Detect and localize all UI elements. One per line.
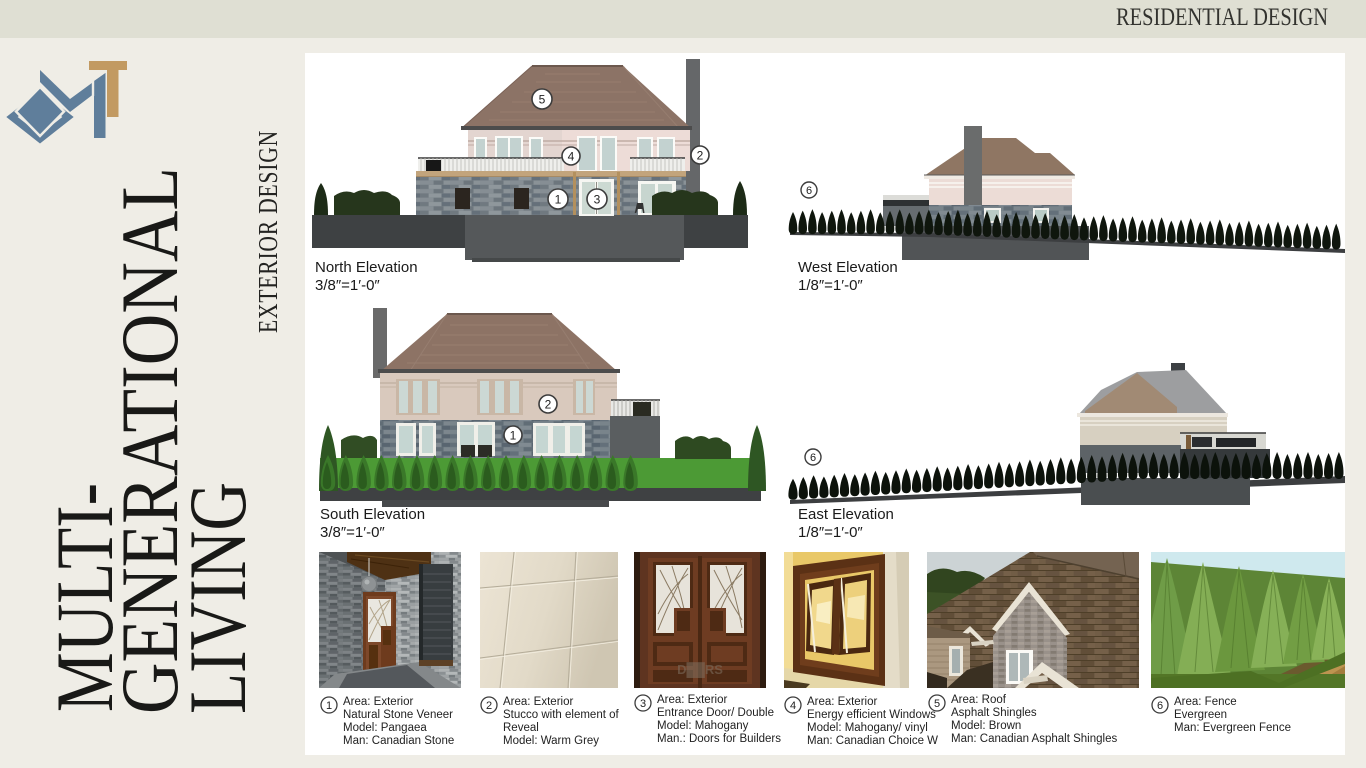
svg-text:LIVING: LIVING — [172, 482, 263, 714]
svg-text:3: 3 — [594, 193, 601, 207]
svg-text:5: 5 — [934, 698, 940, 710]
svg-text:1: 1 — [326, 700, 332, 712]
svg-text:3: 3 — [640, 698, 646, 710]
svg-text:6: 6 — [806, 185, 812, 197]
svg-text:6: 6 — [810, 452, 816, 464]
svg-text:6: 6 — [1157, 700, 1163, 712]
svg-text:4: 4 — [568, 150, 575, 164]
svg-text:1: 1 — [555, 193, 562, 207]
svg-text:4: 4 — [790, 700, 796, 712]
svg-text:2: 2 — [486, 700, 492, 712]
svg-text:1: 1 — [510, 429, 517, 443]
svg-text:2: 2 — [697, 149, 704, 163]
svg-text:RESIDENTIAL DESIGN: RESIDENTIAL DESIGN — [1116, 4, 1328, 31]
svg-text:D██RS: D██RS — [677, 662, 723, 678]
svg-text:EXTERIOR DESIGN: EXTERIOR DESIGN — [253, 130, 283, 333]
svg-text:5: 5 — [539, 93, 546, 107]
svg-text:2: 2 — [545, 398, 552, 412]
